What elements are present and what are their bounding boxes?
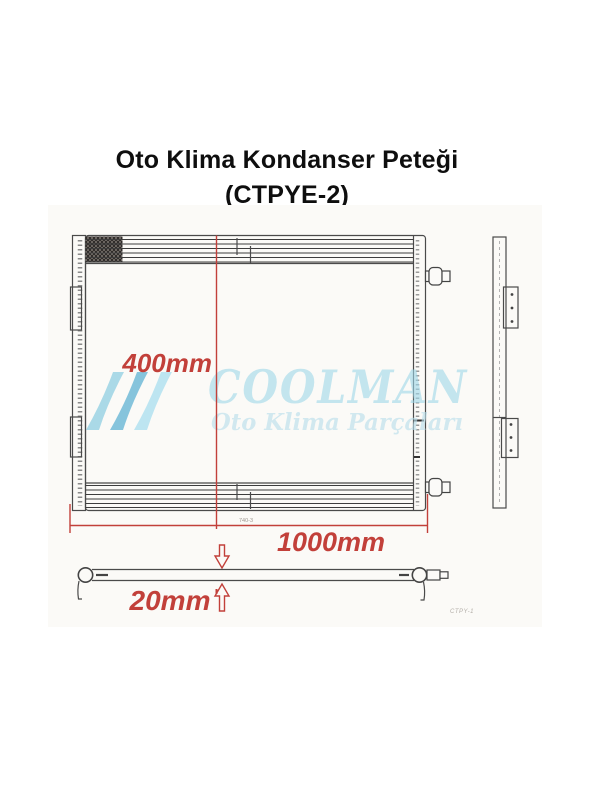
height-dimension-label: 400mm (121, 348, 212, 378)
top-hatch-block (86, 237, 123, 263)
technical-drawing: COOLMAN Oto Klima Parçaları 400mm 740-3 … (0, 0, 600, 800)
depth-dimension-label: 20mm (129, 585, 211, 616)
watermark-brand-text: COOLMAN (208, 360, 468, 414)
left-port-circle (78, 568, 92, 582)
right-port-fitting (427, 570, 448, 580)
product-image-page: Oto Klima Kondanser Peteği (CTPYE-2) (0, 0, 600, 800)
width-dimension-label: 1000mm (277, 527, 385, 557)
inner-dimension-note: 740-3 (239, 518, 253, 524)
drawing-code-note: CTPY-1 (450, 609, 474, 615)
right-port-circle (412, 568, 426, 582)
watermark-tagline-text: Oto Klima Parçaları (211, 409, 463, 436)
depth-tolerance-mark (216, 589, 218, 594)
